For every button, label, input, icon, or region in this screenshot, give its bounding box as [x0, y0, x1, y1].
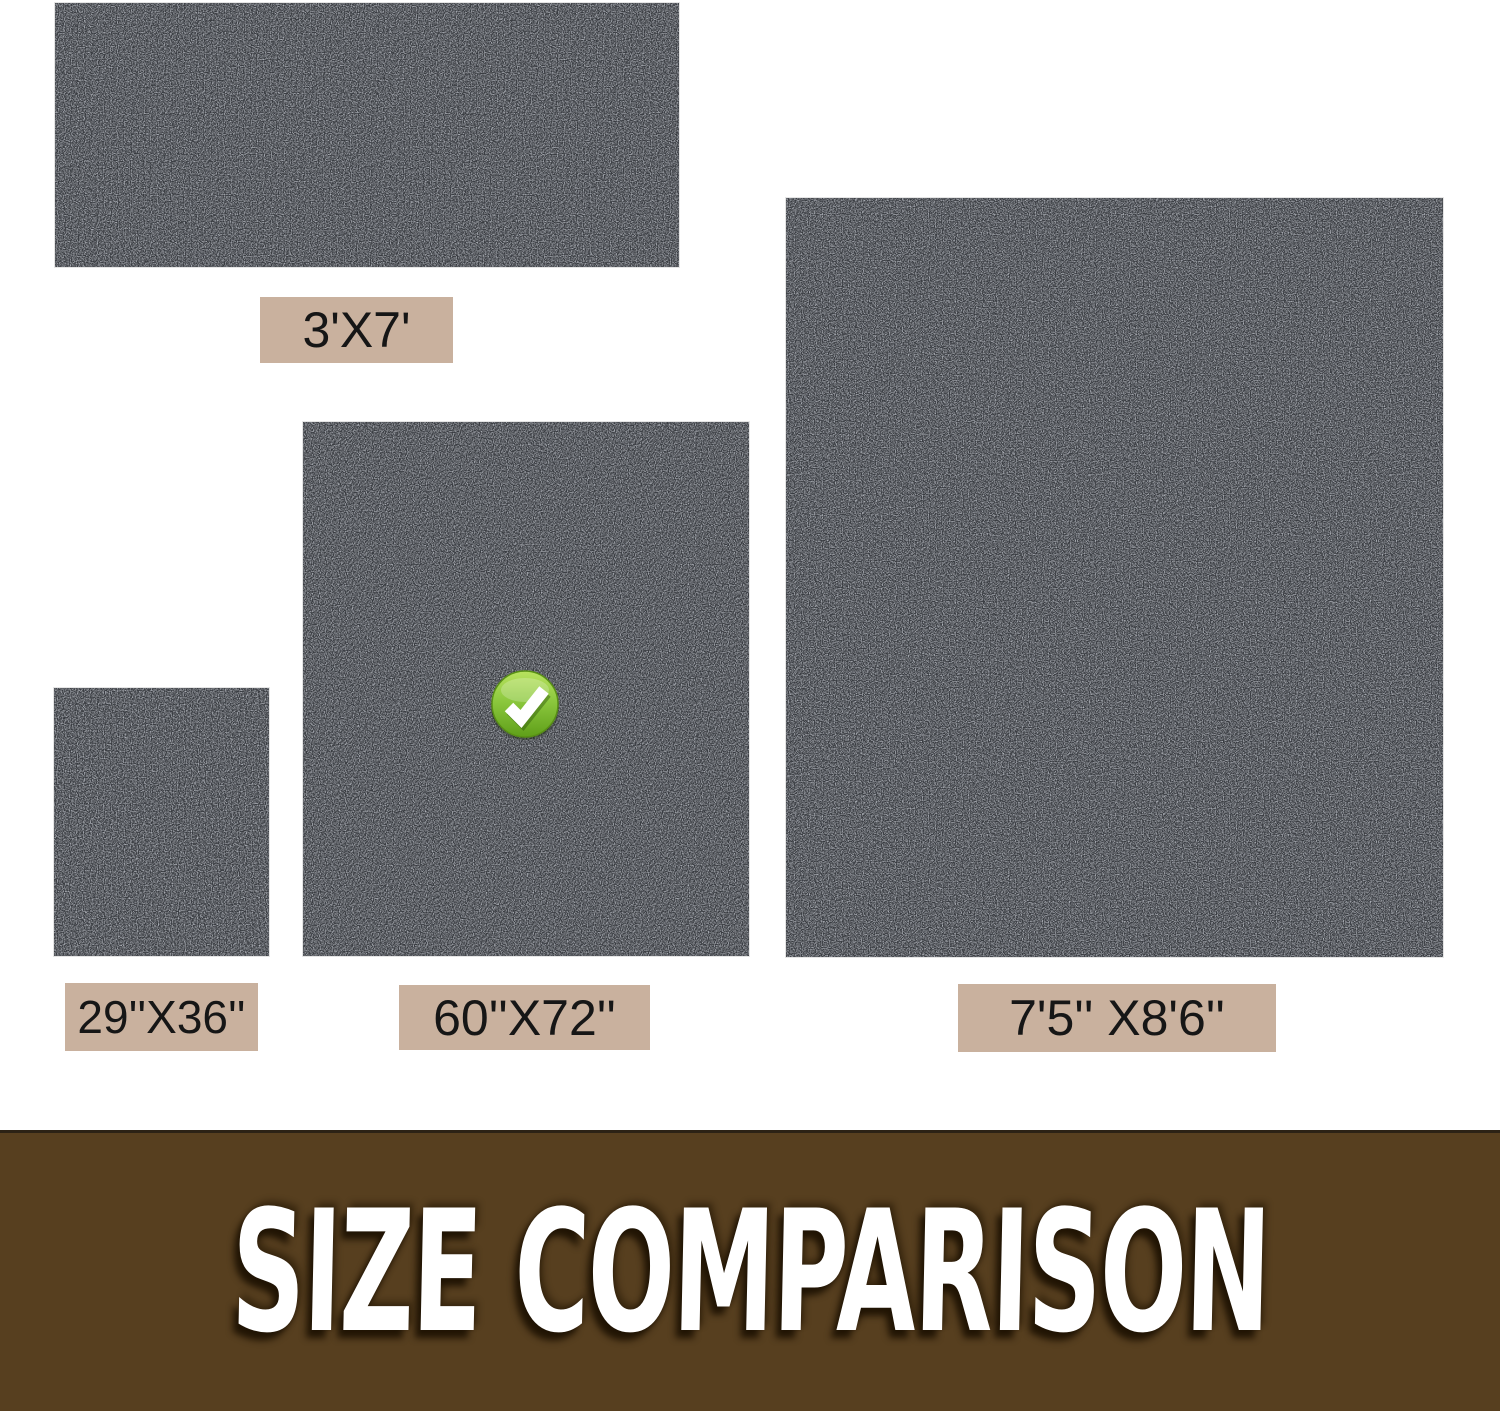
- mat-swatch-29x36: [54, 688, 269, 956]
- size-comparison-image: 3'X7' 29''X36'' 60''X72'' 7'5'' X8'6'' S…: [0, 0, 1500, 1411]
- mat-swatch-7-5x8-6: [786, 198, 1443, 957]
- carpet-texture: [786, 198, 1443, 957]
- size-label-text: 7'5'' X8'6'': [1009, 989, 1225, 1047]
- carpet-texture: [54, 688, 269, 956]
- size-comparison-banner: SIZE COMPARISON: [0, 1130, 1500, 1411]
- size-label-text: 3'X7': [302, 301, 410, 359]
- banner-title: SIZE COMPARISON: [229, 1188, 1270, 1356]
- check-icon: [488, 668, 562, 742]
- mat-swatch-3x7: [55, 3, 679, 267]
- carpet-texture: [55, 3, 679, 267]
- size-label-7-5x8-6: 7'5'' X8'6'': [958, 984, 1276, 1052]
- size-label-text: 60''X72'': [433, 989, 616, 1047]
- size-label-29x36: 29''X36'': [65, 983, 258, 1051]
- size-label-text: 29''X36'': [77, 990, 245, 1044]
- size-label-60x72: 60''X72'': [399, 985, 650, 1050]
- size-label-3x7: 3'X7': [260, 297, 453, 363]
